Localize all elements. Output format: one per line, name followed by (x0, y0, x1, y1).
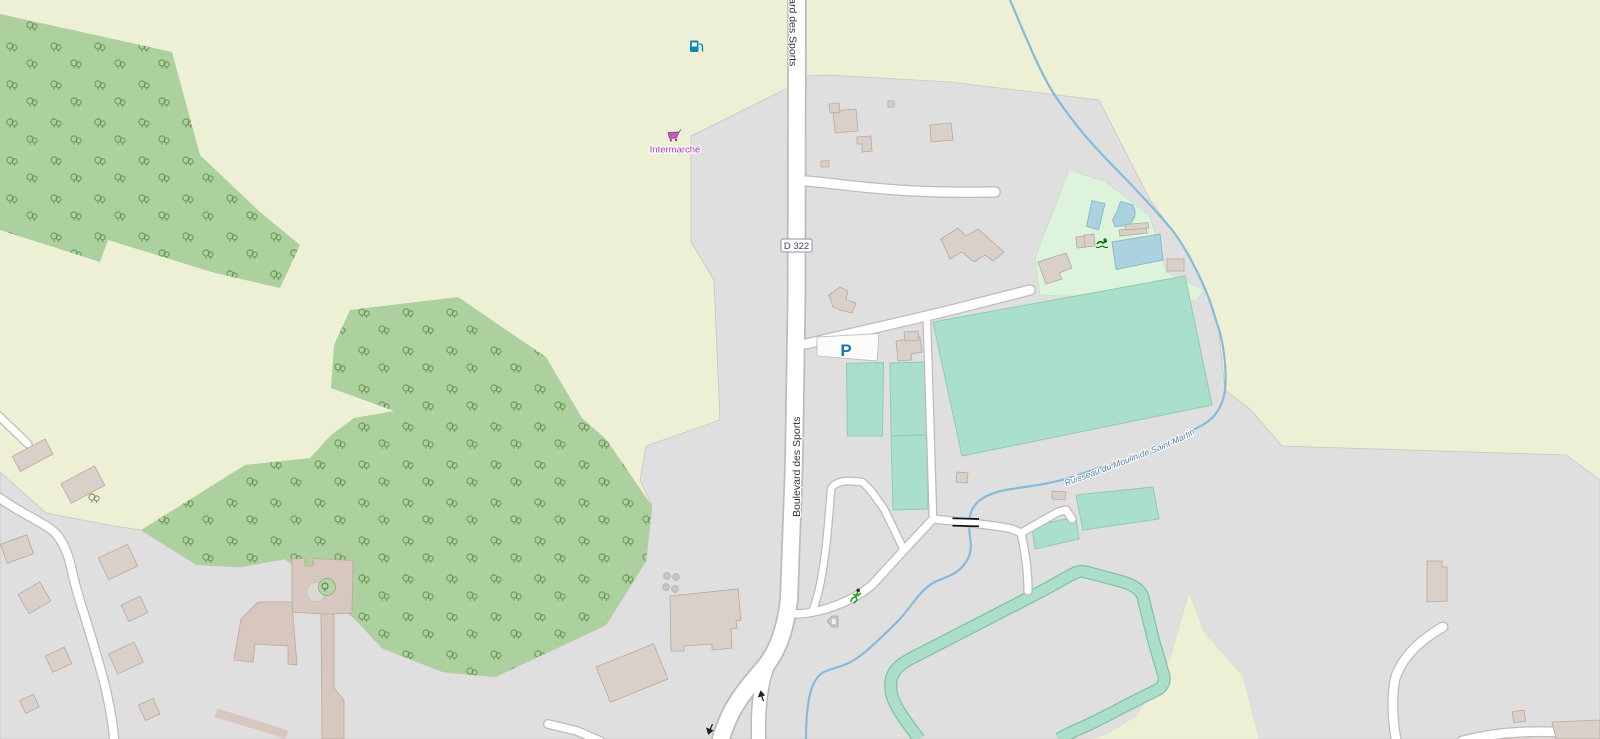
svg-text:Intermarché: Intermarché (650, 145, 701, 156)
svg-text:D 322: D 322 (784, 241, 809, 252)
svg-text:Boulevard des Sports: Boulevard des Sports (787, 0, 799, 66)
svg-text:Boulevard des Sports: Boulevard des Sports (791, 417, 803, 517)
svg-text:P: P (840, 341, 851, 360)
